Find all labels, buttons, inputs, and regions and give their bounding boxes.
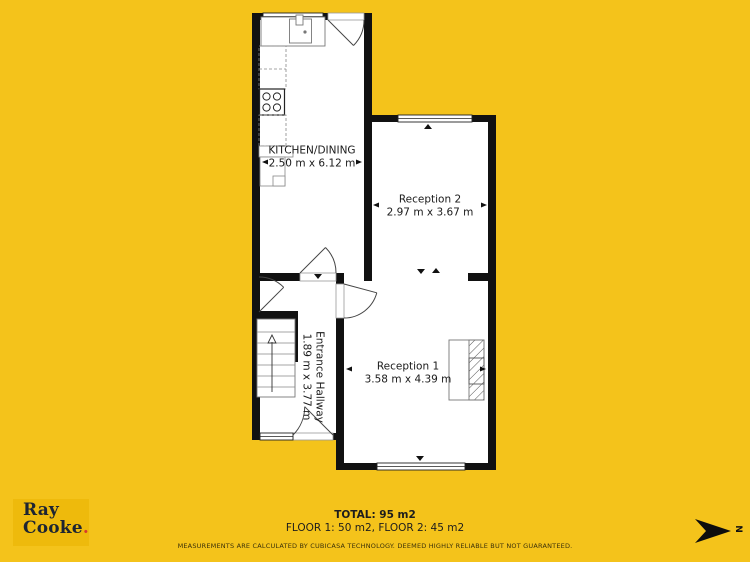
room-name: Reception 1 <box>365 361 452 374</box>
floorplan-drawing <box>0 0 750 562</box>
wall-reception1-bottom-a <box>336 463 377 470</box>
room-name: Reception 2 <box>387 194 474 207</box>
window-reception1-bottom <box>377 463 465 470</box>
room-label-reception1: Reception 1 3.58 m x 4.39 m <box>365 361 452 386</box>
faucet <box>296 15 303 25</box>
wall-hallway-bottom <box>333 433 344 440</box>
wall-divide-stub <box>468 273 488 281</box>
north-arrow-icon <box>688 514 748 554</box>
room-label-kitchen: KITCHEN/DINING 2.50 m x 6.12 m <box>268 145 355 170</box>
room-name: Entrance Hallway <box>313 331 326 423</box>
window-reception2-top <box>398 115 472 122</box>
staircase <box>257 319 295 397</box>
room-dimensions: 2.50 m x 6.12 m <box>268 157 355 170</box>
stove <box>260 89 285 115</box>
wall-kitchen-right <box>364 13 372 281</box>
disclaimer-text: MEASUREMENTS ARE CALCULATED BY CUBICASA … <box>0 542 750 550</box>
sink <box>290 15 312 43</box>
room-dimensions: 3.58 m x 4.39 m <box>365 373 452 386</box>
fireplace <box>449 340 484 400</box>
opening-kitchen-top <box>328 13 364 20</box>
compass: N <box>688 514 748 554</box>
drain <box>303 30 306 33</box>
wall-hallway-right-b <box>336 318 344 470</box>
opening-entrance <box>293 433 333 440</box>
room-label-reception2: Reception 2 2.97 m x 3.67 m <box>387 194 474 219</box>
kitchen-unit-notch <box>273 176 285 186</box>
room-dimensions: 2.97 m x 3.67 m <box>387 206 474 219</box>
floor-areas: FLOOR 1: 50 m2, FLOOR 2: 45 m2 <box>0 522 750 535</box>
wall-reception1-bottom-b <box>465 463 496 470</box>
opening-hallway-reception1 <box>336 284 344 318</box>
total-area: TOTAL: 95 m2 <box>0 509 750 522</box>
floorplan-page: KITCHEN/DINING 2.50 m x 6.12 m Reception… <box>0 0 750 562</box>
room-label-hallway: Entrance Hallway 1.89 m x 3.77 m <box>301 331 326 423</box>
area-summary: TOTAL: 95 m2 FLOOR 1: 50 m2, FLOOR 2: 45… <box>0 509 750 550</box>
window-hallway-bottom <box>260 433 293 440</box>
north-label: N <box>733 525 743 533</box>
room-dimensions: 1.89 m x 3.77 m <box>301 331 314 423</box>
room-name: KITCHEN/DINING <box>268 145 355 158</box>
wall-hallway-right-a <box>336 273 344 284</box>
wall-right-outer <box>488 115 496 470</box>
